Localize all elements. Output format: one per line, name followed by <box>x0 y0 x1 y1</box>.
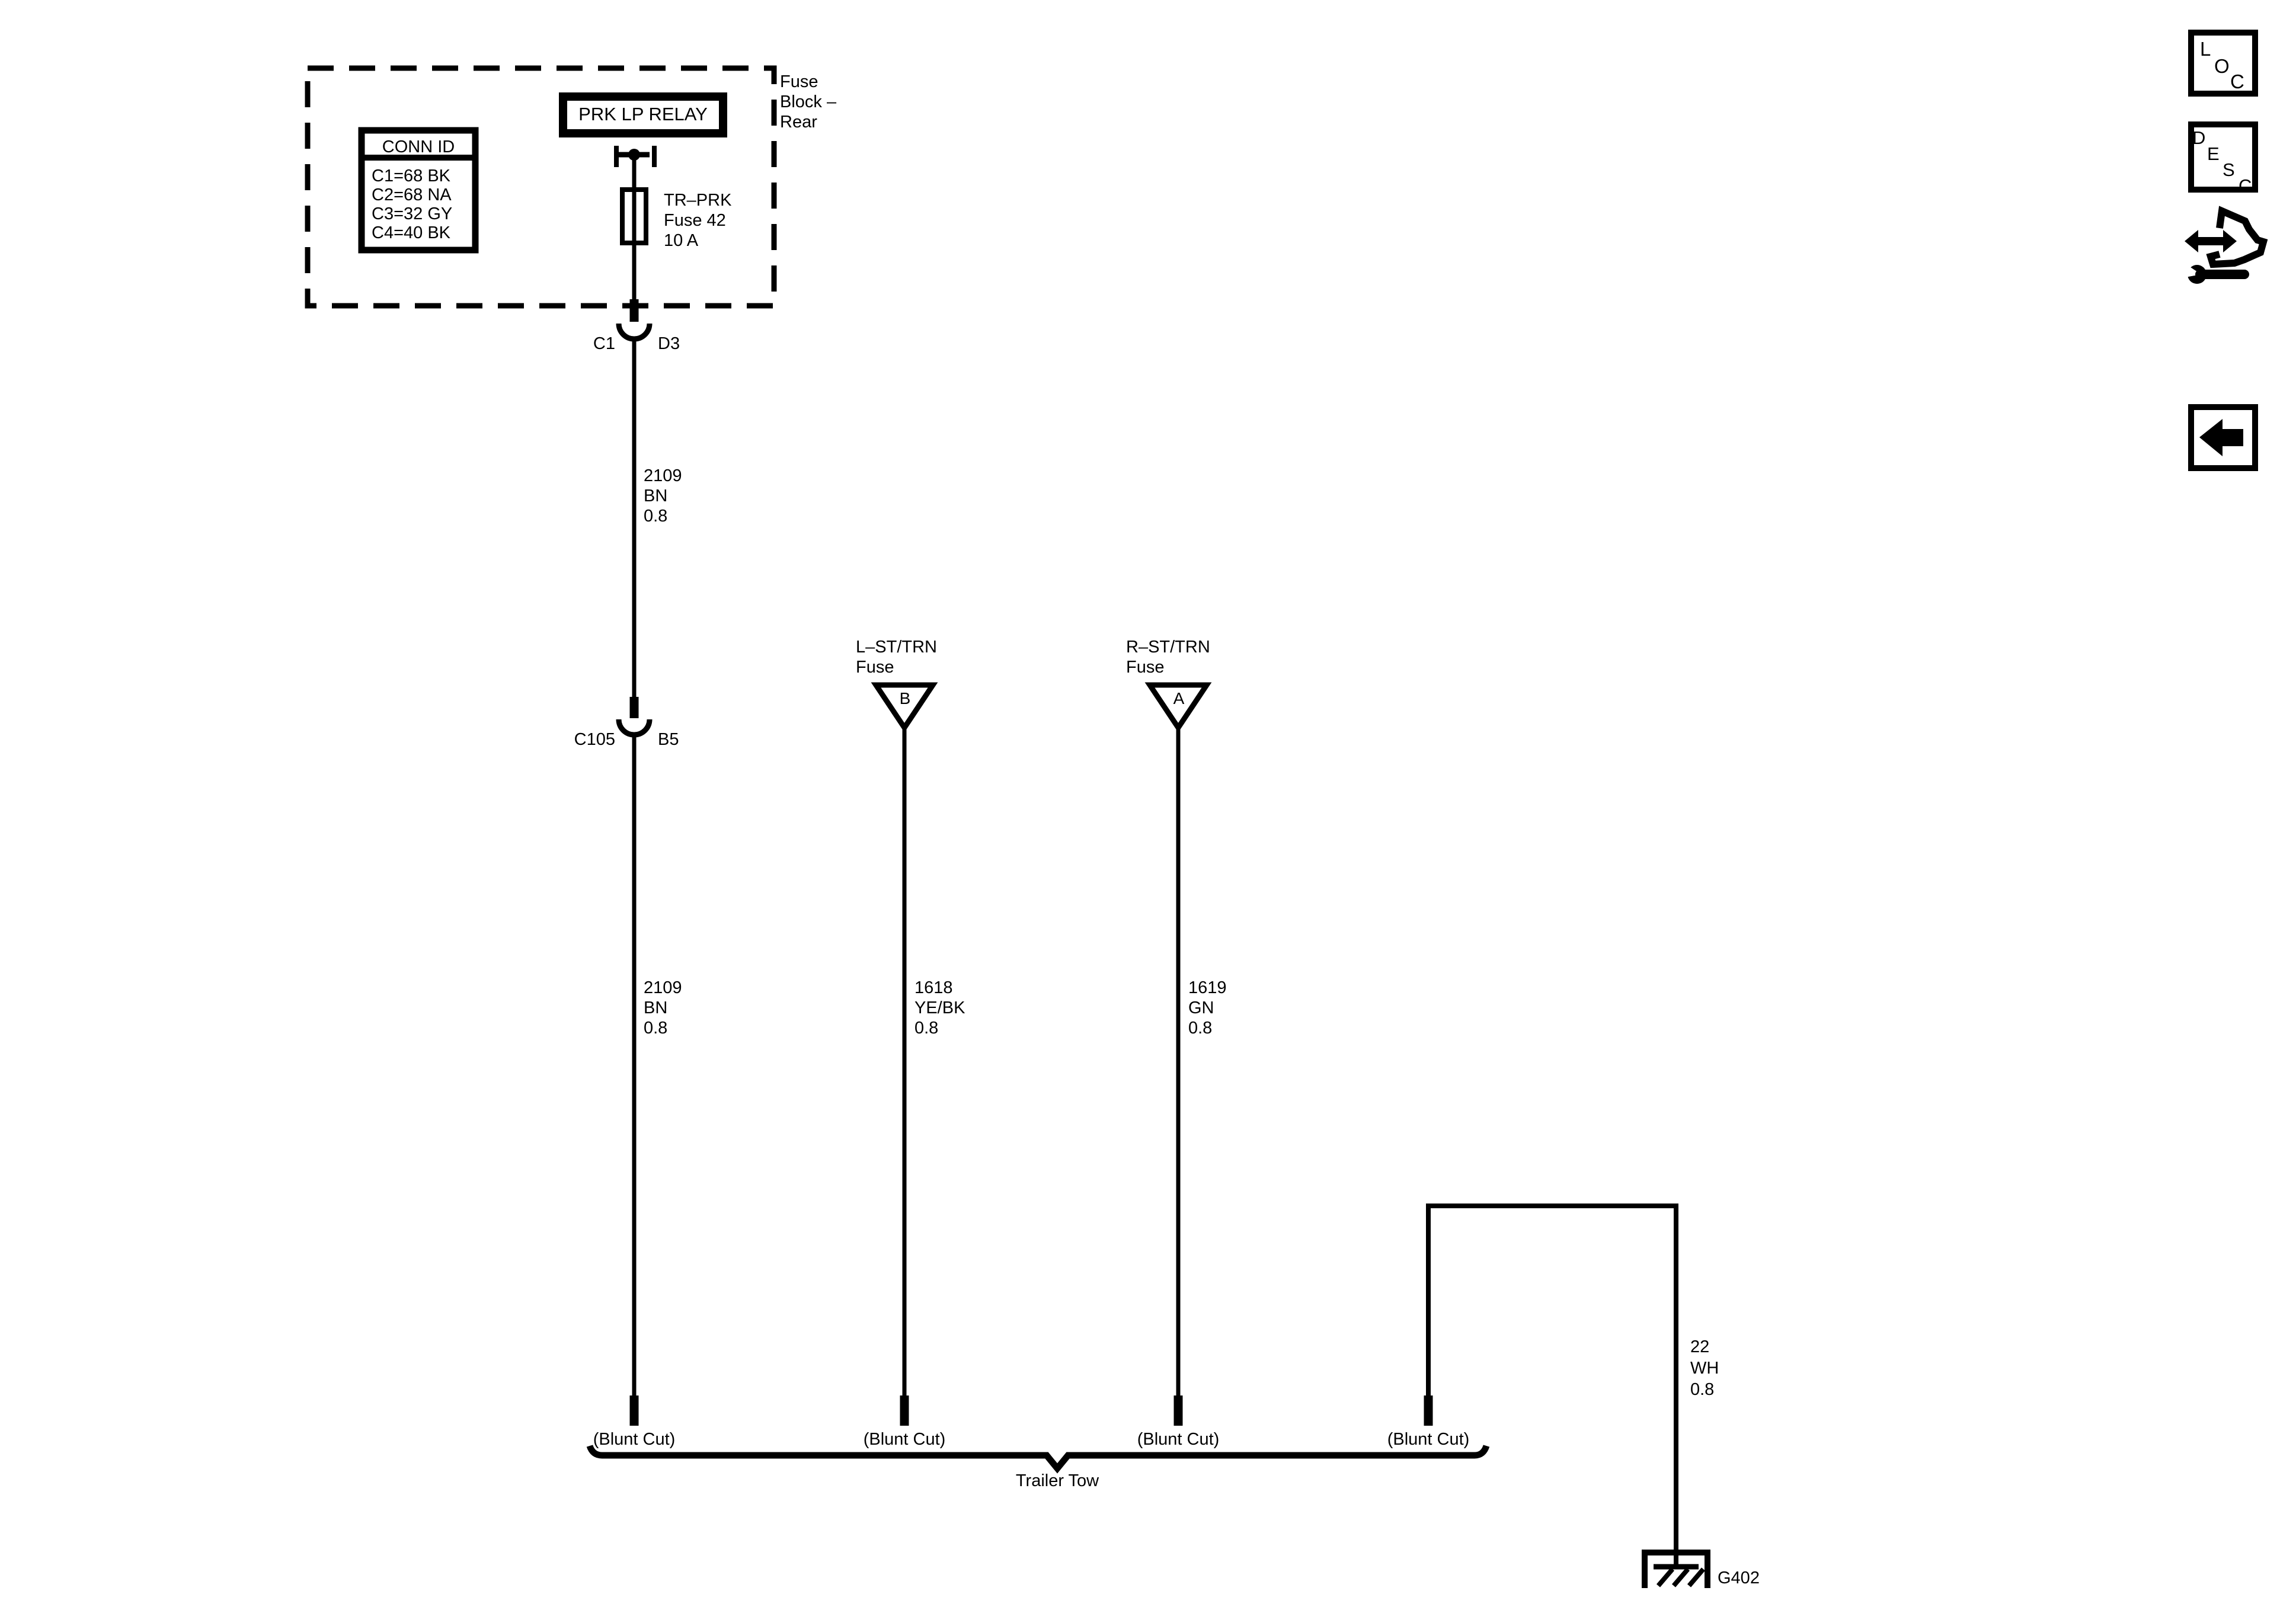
wiring-diagram-canvas <box>0 0 2296 1610</box>
wire-label-1618: 1618 YE/BK 0.8 <box>914 978 965 1038</box>
connector-c105-symbol <box>619 697 650 735</box>
circuit-number: 2109 <box>644 466 682 486</box>
repair-location-icon[interactable] <box>2185 211 2263 284</box>
desc-letter-s: S <box>2223 160 2235 180</box>
wire-color: YE/BK <box>914 998 965 1018</box>
blunt-cut-label-3: (Blunt Cut) <box>1137 1429 1220 1449</box>
connector-c105-name: C105 <box>533 729 615 750</box>
loc-letter-l: L <box>2200 39 2211 59</box>
terminal-b-letter: B <box>900 689 911 709</box>
wire-gauge: 0.8 <box>914 1018 965 1038</box>
blunt-cut-tips <box>634 1395 1428 1426</box>
circuit-number: 1619 <box>1188 978 1227 998</box>
circuit-number: 1618 <box>914 978 965 998</box>
fuse-block-name: Fuse Block – Rear <box>780 72 836 132</box>
wire-label-22: 22 WH 0.8 <box>1690 1336 1719 1400</box>
wire-gauge: 0.8 <box>1188 1018 1227 1038</box>
fuse-42-number: Fuse 42 <box>664 210 731 231</box>
circuit-number: 2109 <box>644 978 682 998</box>
conn-id-header: CONN ID <box>382 137 455 157</box>
terminal-a-letter: A <box>1173 689 1185 709</box>
wire-gauge: 0.8 <box>1690 1379 1719 1400</box>
fuse-42-label: TR–PRK Fuse 42 10 A <box>664 190 731 251</box>
terminal-b-name: L–ST/TRN <box>856 637 937 657</box>
trailer-tow-brace <box>590 1446 1486 1468</box>
harness-label: Trailer Tow <box>1016 1471 1099 1491</box>
terminal-a-name: R–ST/TRN <box>1126 637 1210 657</box>
wire-color: WH <box>1690 1358 1719 1379</box>
ground-symbol <box>1642 1550 1710 1588</box>
wire-gauge: 0.8 <box>644 506 682 526</box>
connector-c1-name: C1 <box>545 334 615 354</box>
fuse-block-name-line1: Fuse <box>780 72 836 92</box>
back-button-frame[interactable] <box>2191 407 2255 468</box>
conn-id-row-3: C3=32 GY <box>372 204 452 223</box>
wire-label-2109-upper: 2109 BN 0.8 <box>644 466 682 526</box>
conn-id-row-2: C2=68 NA <box>372 185 452 204</box>
desc-letter-c: C <box>2239 176 2252 196</box>
fuse-block-name-line2: Block – <box>780 92 836 112</box>
circuit-number: 22 <box>1690 1336 1719 1358</box>
double-arrow-icon <box>2185 230 2237 252</box>
relay-label: PRK LP RELAY <box>578 104 708 124</box>
terminal-a-type: Fuse <box>1126 657 1210 677</box>
wire-label-1619: 1619 GN 0.8 <box>1188 978 1227 1038</box>
wire-22-wh <box>1428 1206 1676 1567</box>
blunt-cut-label-4: (Blunt Cut) <box>1387 1429 1470 1449</box>
conn-id-rows: C1=68 BK C2=68 NA C3=32 GY C4=40 BK <box>372 167 452 242</box>
wire-color: BN <box>644 998 682 1018</box>
fuse-block-name-line3: Rear <box>780 112 836 132</box>
back-arrow-icon <box>2199 419 2243 456</box>
loc-letter-c: C <box>2230 72 2244 91</box>
terminal-a-label: R–ST/TRN Fuse <box>1126 637 1210 677</box>
blunt-cut-label-1: (Blunt Cut) <box>593 1429 676 1449</box>
terminal-b-label: L–ST/TRN Fuse <box>856 637 937 677</box>
terminal-a-triangle <box>1150 685 1207 1398</box>
wire-color: BN <box>644 486 682 506</box>
desc-letter-e: E <box>2207 144 2220 164</box>
terminal-b-triangle <box>876 685 933 1398</box>
wire-label-2109-lower: 2109 BN 0.8 <box>644 978 682 1038</box>
conn-id-row-4: C4=40 BK <box>372 223 452 242</box>
connector-c105-pin: B5 <box>658 729 679 750</box>
wire-color: GN <box>1188 998 1227 1018</box>
terminal-b-type: Fuse <box>856 657 937 677</box>
desc-letter-d: D <box>2192 128 2205 148</box>
loc-letter-o: O <box>2214 56 2230 76</box>
connector-c1-pin: D3 <box>658 334 680 354</box>
ground-id-label: G402 <box>1718 1568 1760 1588</box>
wire-gauge: 0.8 <box>644 1018 682 1038</box>
wiring-diagram-page: Fuse Block – Rear PRK LP RELAY CONN ID C… <box>0 0 2296 1610</box>
blunt-cut-label-2: (Blunt Cut) <box>864 1429 946 1449</box>
conn-id-row-1: C1=68 BK <box>372 167 452 185</box>
fuse-42-name: TR–PRK <box>664 190 731 210</box>
fuse-42-rating: 10 A <box>664 231 731 251</box>
